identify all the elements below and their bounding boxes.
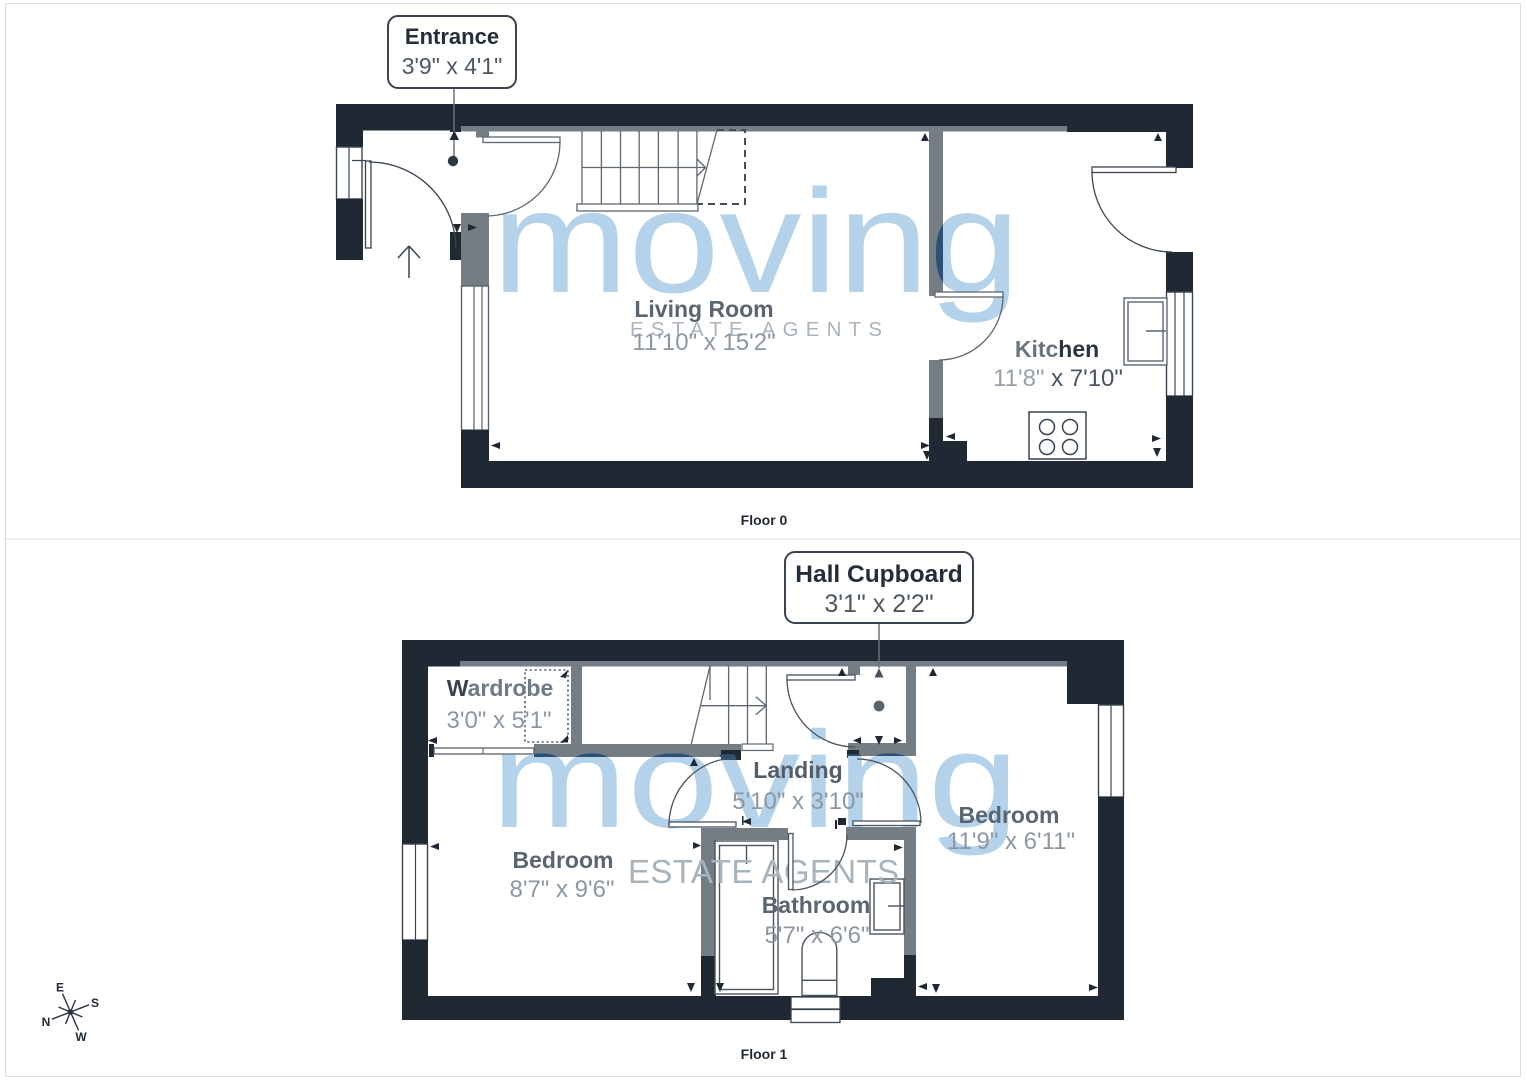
svg-text:Living Room: Living Room xyxy=(634,296,773,322)
svg-text:5'10" x 3'10": 5'10" x 3'10" xyxy=(732,788,864,815)
svg-text:ESTATE AGENTS: ESTATE AGENTS xyxy=(628,853,899,890)
svg-text:11'8" x 7'10": 11'8" x 7'10" xyxy=(993,365,1123,392)
svg-text:E: E xyxy=(56,981,64,995)
svg-text:S: S xyxy=(91,996,99,1010)
svg-text:3'1" x 2'2": 3'1" x 2'2" xyxy=(824,590,933,618)
svg-text:Kitchen: Kitchen xyxy=(1015,336,1099,362)
svg-text:Landing: Landing xyxy=(753,757,842,783)
svg-text:W: W xyxy=(75,1030,87,1044)
svg-text:Floor 1: Floor 1 xyxy=(741,1046,788,1062)
svg-text:Entrance: Entrance xyxy=(405,24,499,49)
svg-text:11'10" x 15'2": 11'10" x 15'2" xyxy=(632,329,775,356)
svg-text:Bedroom: Bedroom xyxy=(513,847,614,873)
svg-text:3'0" x 5'1": 3'0" x 5'1" xyxy=(447,707,552,734)
svg-text:Hall Cupboard: Hall Cupboard xyxy=(795,561,962,588)
svg-text:8'7" x 9'6": 8'7" x 9'6" xyxy=(510,876,615,903)
svg-text:Bathroom: Bathroom xyxy=(762,892,871,918)
svg-text:Floor 0: Floor 0 xyxy=(741,512,788,528)
svg-text:N: N xyxy=(42,1015,51,1029)
svg-text:Bedroom: Bedroom xyxy=(959,802,1060,828)
svg-text:5'7" x 6'6": 5'7" x 6'6" xyxy=(765,922,870,949)
svg-text:3'9" x 4'1": 3'9" x 4'1" xyxy=(402,53,503,79)
svg-text:Wardrobe: Wardrobe xyxy=(447,675,554,701)
svg-text:11'9" x 6'11": 11'9" x 6'11" xyxy=(947,828,1075,855)
